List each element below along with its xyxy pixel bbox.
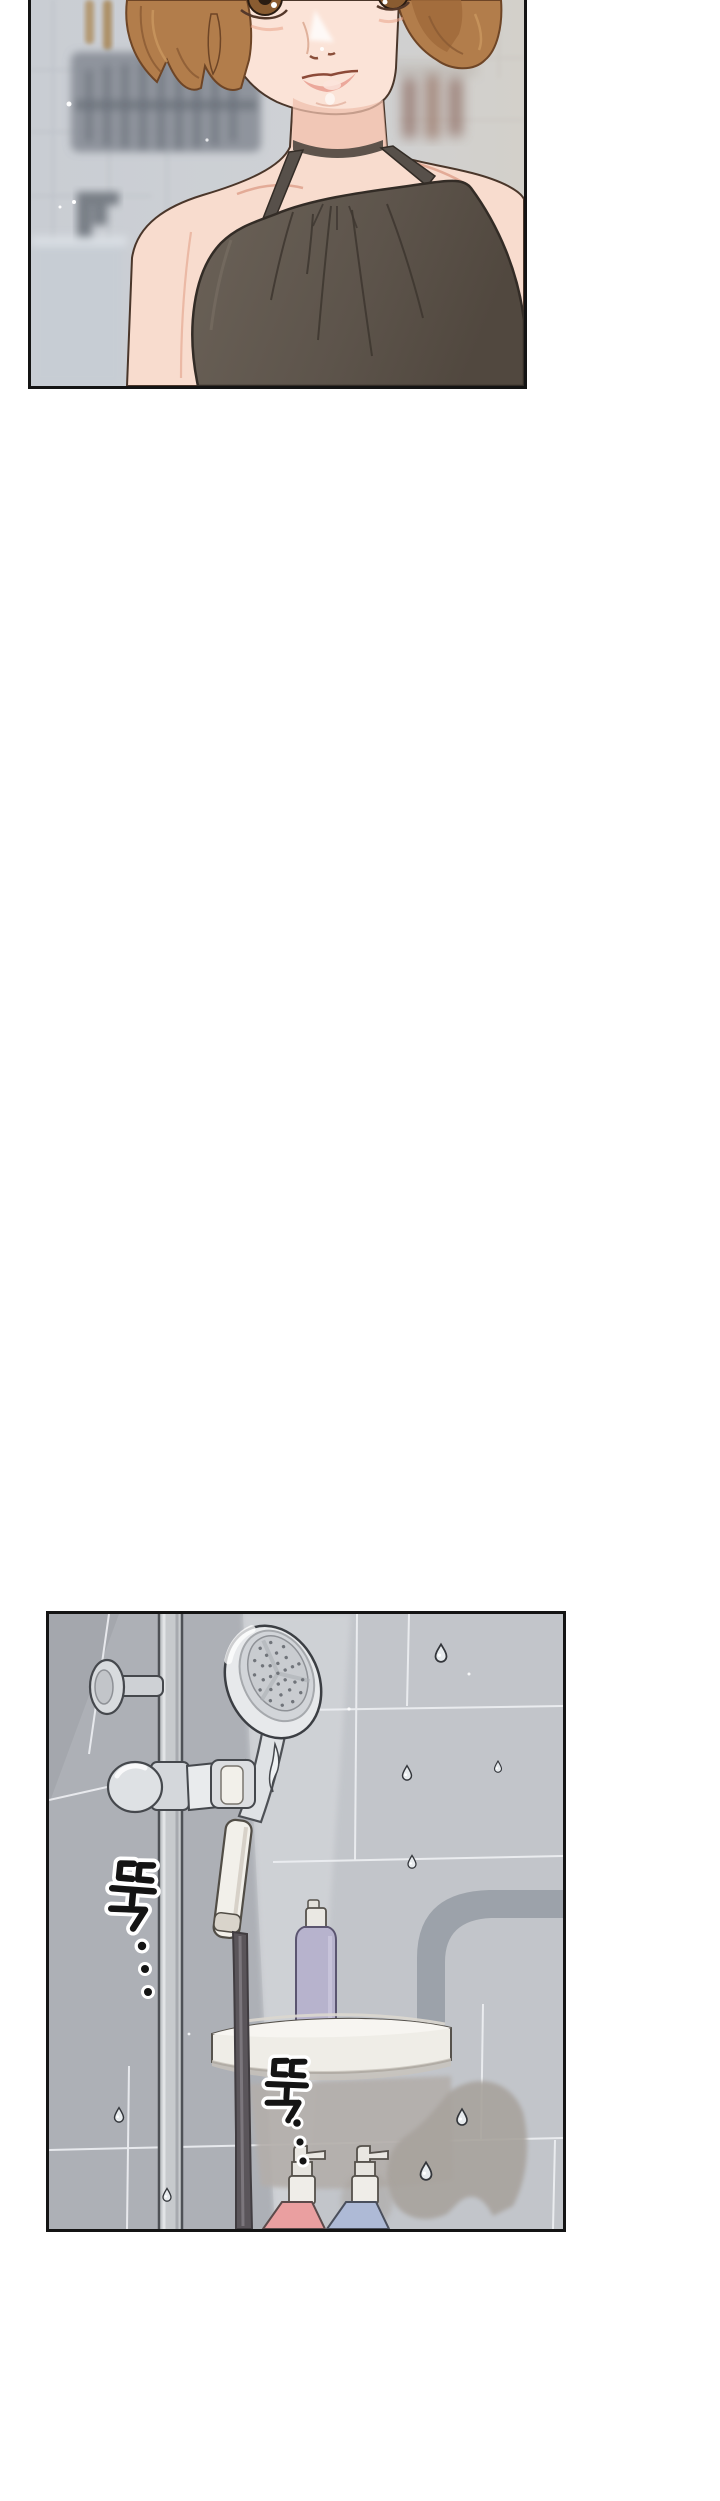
panel-shower-wall <box>46 1611 566 2232</box>
shower-scene-illustration <box>49 1614 563 2229</box>
panel-kitchen-closeup <box>28 0 527 389</box>
counter <box>31 236 127 386</box>
webtoon-page <box>0 0 720 2501</box>
shower-rail <box>158 1614 183 2229</box>
rail-holder <box>108 1760 255 1812</box>
kitchen-scene-illustration <box>31 0 524 386</box>
